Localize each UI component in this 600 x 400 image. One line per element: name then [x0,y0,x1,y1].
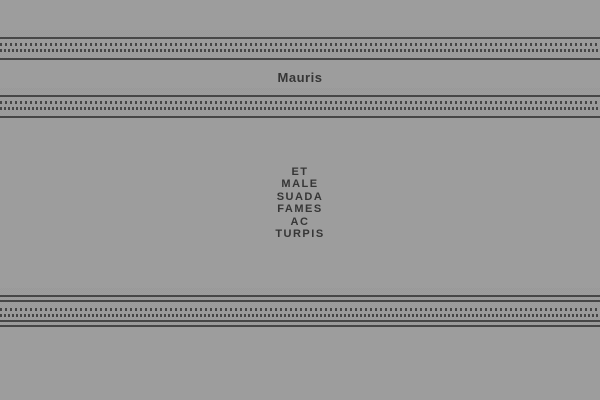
text-line: TURPIS [0,228,600,240]
rule-line [0,295,600,297]
page: Mauris ET MALE SUADA FAMES AC TURPIS [0,0,600,400]
bottom-decorative-rule [0,295,600,327]
page-title: Mauris [278,70,323,85]
text-line: SUADA [0,191,600,203]
rule-line [0,95,600,97]
rule-dotted-row [0,308,600,311]
text-line: AC [0,216,600,228]
text-line: FAMES [0,203,600,215]
rule-line [0,116,600,118]
rule-line [0,325,600,327]
centered-text-block: ET MALE SUADA FAMES AC TURPIS [0,166,600,240]
rule-line [0,37,600,39]
middle-decorative-rule [0,95,600,118]
rule-dotted-row [0,314,600,317]
rule-dotted-row [0,49,600,52]
text-line: MALE [0,178,600,190]
text-line: ET [0,166,600,178]
rule-dotted-row [0,43,600,46]
header-band: Mauris [0,60,600,95]
rule-line [0,320,600,322]
rule-line [0,300,600,302]
top-decorative-rule [0,37,600,60]
rule-dotted-row [0,107,600,110]
rule-dotted-row [0,101,600,104]
